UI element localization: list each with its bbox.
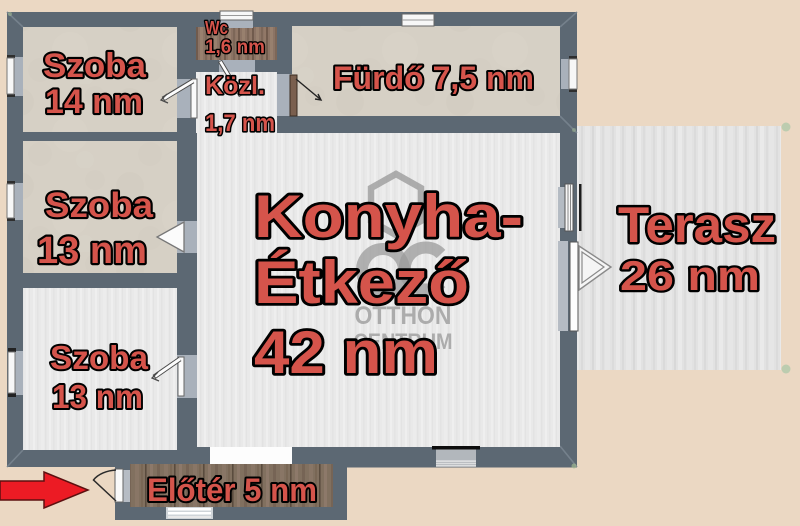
svg-text:Terasz: Terasz bbox=[618, 197, 776, 253]
svg-text:42 nm: 42 nm bbox=[254, 319, 438, 386]
svg-text:26 nm: 26 nm bbox=[620, 252, 760, 299]
svg-text:1,6 nm: 1,6 nm bbox=[205, 37, 265, 58]
svg-text:Szoba: Szoba bbox=[43, 47, 147, 85]
svg-text:Előtér 5 nm: Előtér 5 nm bbox=[147, 472, 317, 508]
svg-text:13 nm: 13 nm bbox=[37, 230, 147, 272]
svg-text:Szoba: Szoba bbox=[45, 186, 154, 225]
svg-text:Étkező: Étkező bbox=[254, 249, 469, 316]
svg-text:Közl.: Közl. bbox=[205, 72, 265, 100]
svg-text:14 nm: 14 nm bbox=[45, 83, 143, 121]
svg-text:13 nm: 13 nm bbox=[52, 378, 143, 415]
svg-text:Wc: Wc bbox=[205, 18, 228, 38]
svg-text:Fürdő 7,5 nm: Fürdő 7,5 nm bbox=[333, 60, 534, 96]
svg-text:Konyha-: Konyha- bbox=[254, 183, 523, 250]
svg-text:1,7 nm: 1,7 nm bbox=[205, 110, 275, 137]
svg-text:Szoba: Szoba bbox=[50, 339, 149, 376]
